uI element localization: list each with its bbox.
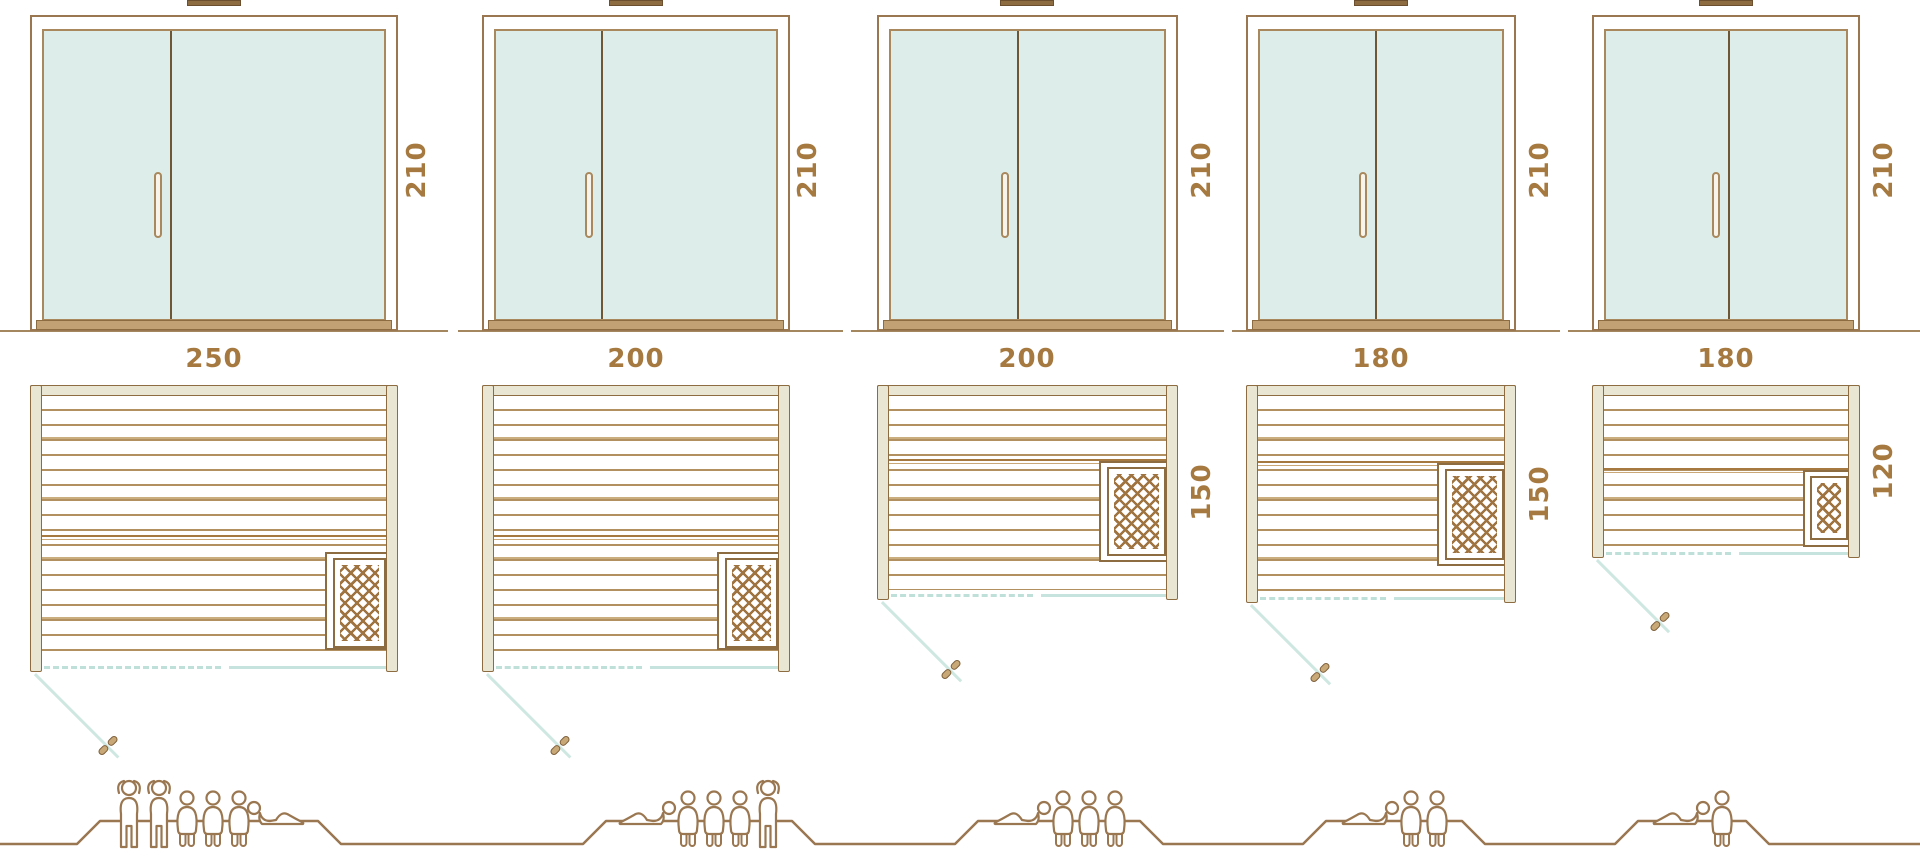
person-sitting-icon [730, 792, 749, 847]
person-sitting-icon [1053, 792, 1072, 847]
bench-edge-line [494, 535, 778, 540]
door-divider [170, 31, 172, 319]
door-handle-icon [154, 172, 162, 238]
door-opening-dashed-line [496, 666, 642, 669]
door-sill [36, 320, 392, 330]
roof-vent-cap [1354, 0, 1408, 6]
glass-front-line [1041, 594, 1166, 597]
plan-wall-right [1848, 385, 1860, 558]
person-standing-icon [757, 781, 779, 847]
floor-plan [1592, 385, 1860, 558]
plan-wall-top [30, 385, 398, 396]
person-sitting-icon [203, 792, 222, 847]
height-dimension-label: 210 [1525, 130, 1555, 210]
heater-crosshatch-icon [1810, 476, 1848, 540]
width-dimension-label: 200 [556, 344, 716, 374]
door-divider [1017, 31, 1019, 319]
glass-door-panels [42, 29, 386, 321]
width-dimension-label: 250 [134, 344, 294, 374]
plan-wall-left [1592, 385, 1604, 558]
door-divider [1728, 31, 1730, 319]
heater-crosshatch-icon [333, 558, 386, 648]
glass-door-panels [1604, 29, 1848, 321]
glass-door-panels [889, 29, 1166, 321]
sauna-size-diagram: 210 250 210 200 21 [0, 0, 1920, 856]
roof-vent-cap [187, 0, 241, 6]
plan-wall-top [877, 385, 1178, 396]
plan-wall-top [1246, 385, 1516, 396]
width-dimension-label: 200 [947, 344, 1107, 374]
width-dimension-label: 180 [1301, 344, 1461, 374]
glass-front-line [650, 666, 778, 669]
plan-wall-right [778, 385, 790, 672]
glass-door-panels [1258, 29, 1504, 321]
heater-crosshatch-icon [1445, 469, 1504, 560]
door-handle-icon [1712, 172, 1720, 238]
door-sill [883, 320, 1172, 330]
door-divider [601, 31, 603, 319]
height-dimension-label: 210 [793, 130, 823, 210]
plan-wall-right [386, 385, 398, 672]
depth-dimension-label: 120 [1869, 431, 1899, 511]
door-opening-dashed-line [1606, 552, 1731, 555]
person-sitting-icon [1079, 792, 1098, 847]
door-handle-icon [585, 172, 593, 238]
bench-edge-line [42, 535, 386, 540]
floor-plan [30, 385, 398, 672]
floor-plan [877, 385, 1178, 600]
glass-door-panels [494, 29, 778, 321]
door-opening-dashed-line [44, 666, 221, 669]
roof-vent-cap [609, 0, 663, 6]
person-sitting-icon [229, 792, 248, 847]
glass-front-line [1394, 597, 1504, 600]
plan-wall-left [877, 385, 889, 600]
plan-wall-left [1246, 385, 1258, 603]
person-sitting-icon [1712, 792, 1731, 847]
door-handle-icon [1359, 172, 1367, 238]
plan-wall-right [1166, 385, 1178, 600]
person-sitting-icon [177, 792, 196, 847]
floor-plan [482, 385, 790, 672]
person-sitting-icon [1401, 792, 1420, 847]
height-dimension-label: 210 [1187, 130, 1217, 210]
person-sitting-icon [704, 792, 723, 847]
width-dimension-label: 180 [1646, 344, 1806, 374]
door-sill [488, 320, 784, 330]
roof-vent-cap [1699, 0, 1753, 6]
person-sitting-icon [678, 792, 697, 847]
plan-wall-top [482, 385, 790, 396]
plan-wall-right [1504, 385, 1516, 603]
person-sitting-icon [1105, 792, 1124, 847]
height-dimension-label: 210 [1869, 130, 1899, 210]
person-standing-icon [118, 781, 140, 847]
heater-crosshatch-icon [1107, 467, 1166, 556]
depth-dimension-label: 150 [1525, 454, 1555, 534]
capacity-pictogram-strip [0, 756, 1920, 856]
roof-vent-cap [1000, 0, 1054, 6]
door-divider [1375, 31, 1377, 319]
door-sill [1252, 320, 1510, 330]
person-standing-icon [148, 781, 170, 847]
plan-wall-left [482, 385, 494, 672]
door-sill [1598, 320, 1854, 330]
floor-plan [1246, 385, 1516, 603]
heater-crosshatch-icon [725, 558, 778, 648]
person-sitting-icon [1427, 792, 1446, 847]
glass-front-line [229, 666, 386, 669]
glass-front-line [1739, 552, 1848, 555]
plan-wall-top [1592, 385, 1860, 396]
door-opening-dashed-line [1260, 597, 1386, 600]
depth-dimension-label: 150 [1187, 452, 1217, 532]
door-handle-icon [1001, 172, 1009, 238]
plan-wall-left [30, 385, 42, 672]
height-dimension-label: 210 [402, 130, 432, 210]
door-opening-dashed-line [891, 594, 1033, 597]
